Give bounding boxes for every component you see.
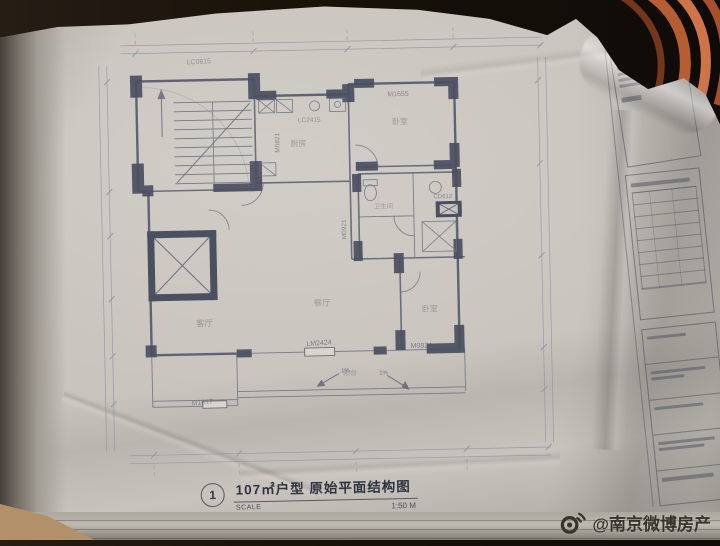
label-bedroom-top: 卧室 xyxy=(392,116,408,126)
label-top-window: LC0815 xyxy=(186,58,211,66)
label-balcony: 阳台 xyxy=(343,368,357,377)
drawing-area: LC0815 M0821 LC2415 M1655 CD612 M0921 LM… xyxy=(0,0,626,546)
label-balcony-slider-left: LM2424 xyxy=(306,339,332,348)
elevator-shaft xyxy=(147,230,217,301)
label-living: 客厅 xyxy=(196,318,214,328)
duct-shaft xyxy=(436,201,462,218)
titleblock-info-section xyxy=(641,322,720,507)
label-kitchen: 厨房 xyxy=(290,138,306,148)
photo-frame: LC0815 M0821 LC2415 M1655 CD612 M0921 LM… xyxy=(0,0,720,540)
label-bedroom-right: 卧室 xyxy=(422,303,438,313)
label-bath-door: M0921 xyxy=(341,219,348,239)
label-slope-right: 1% xyxy=(379,370,388,376)
weibo-logo-icon xyxy=(559,511,586,535)
label-dining: 餐厅 xyxy=(314,298,332,308)
thin-walls-and-balcony xyxy=(148,172,466,408)
watermark-handle: @南京微博房产 xyxy=(592,510,711,535)
label-duct: CD612 xyxy=(433,194,452,200)
label-kitchen-window: LC2415 xyxy=(298,117,321,124)
label-kitchen-door: M0821 xyxy=(274,132,281,152)
wall-fills xyxy=(130,69,465,360)
titleblock-table-section xyxy=(625,167,715,320)
scale-value: 1:50 M xyxy=(391,501,416,511)
watermark: @南京微博房产 xyxy=(559,510,711,535)
label-bath: 卫生间 xyxy=(374,201,394,210)
label-balcony-slider-right: M0824 xyxy=(411,342,433,349)
figure-number: 1 xyxy=(209,488,216,502)
label-bedroom-top-door: M1655 xyxy=(387,91,409,98)
floor-plan-svg: LC0815 M0821 LC2415 M1655 CD612 M0921 LM… xyxy=(80,17,574,482)
staircase xyxy=(157,87,253,185)
titleblock-signature-table xyxy=(632,186,707,290)
figure-number-circle: 1 xyxy=(200,483,224,507)
blueprint-paper: LC0815 M0821 LC2415 M1655 CD612 M0921 LM… xyxy=(0,0,720,540)
sliding-door-panels xyxy=(202,348,336,409)
figure-title-block: 1 107㎡户型 原始平面结构图 SCALE 1:50 M xyxy=(200,475,418,515)
